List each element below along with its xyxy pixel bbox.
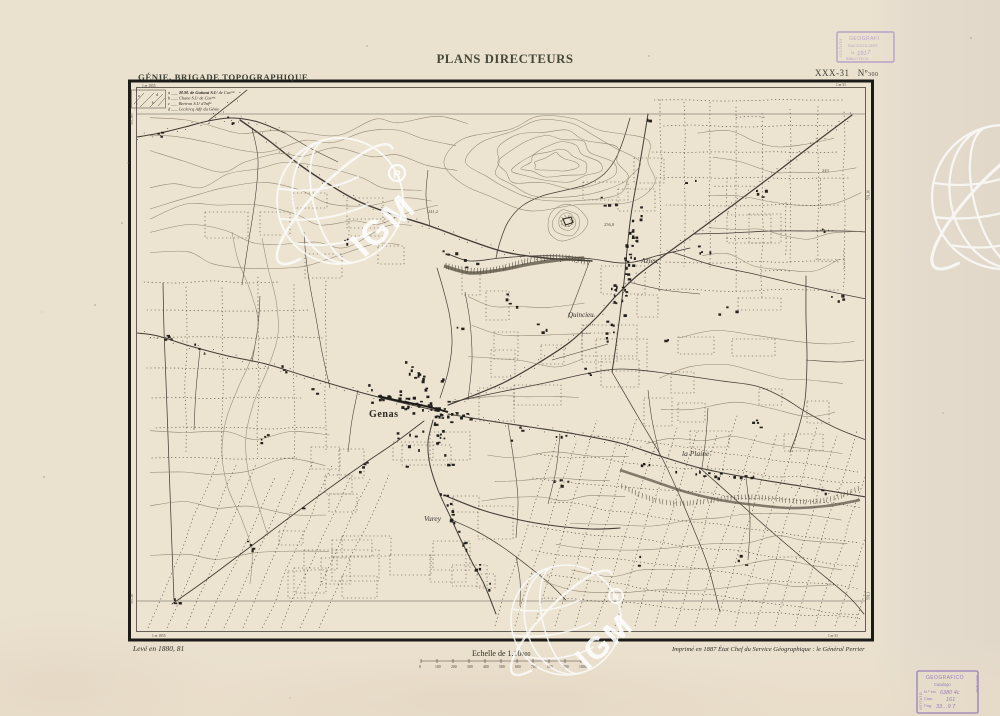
svg-text:243: 243 xyxy=(822,168,830,173)
svg-text:Levé en 1880, 81: Levé en 1880, 81 xyxy=(132,644,184,653)
svg-text:400: 400 xyxy=(483,665,489,669)
svg-text:0: 0 xyxy=(419,665,421,669)
svg-text:PLANS DIRECTEURS: PLANS DIRECTEURS xyxy=(436,52,573,66)
svg-text:d: d xyxy=(156,92,158,97)
svg-text:GEOGRAFICO: GEOGRAFICO xyxy=(926,675,964,681)
svg-text:Quincieu: Quincieu xyxy=(568,311,594,319)
svg-text:c ___ Bertron S.Lt d'Infie: c ___ Bertron S.Lt d'Infie xyxy=(168,101,212,106)
svg-text:591.1: 591.1 xyxy=(867,592,871,600)
svg-text:a ___ M.M. de Guitaut S.Lt de: a ___ M.M. de Guitaut S.Lt de Cavrie xyxy=(168,90,235,95)
svg-text:la Plaine: la Plaine xyxy=(682,449,710,458)
svg-text:ISTITUTO: ISTITUTO xyxy=(839,38,843,57)
svg-text:Genas: Genas xyxy=(369,409,399,420)
svg-text:300: 300 xyxy=(467,665,473,669)
svg-text:100: 100 xyxy=(435,665,441,669)
svg-text:b ___ Chane S.Lt de Cavrie: b ___ Chane S.Lt de Cavrie xyxy=(168,96,216,101)
svg-text:a: a xyxy=(138,93,140,98)
svg-text:33…9 7: 33…9 7 xyxy=(936,704,956,710)
svg-text:Imprimé en 1887 État Chef du: Imprimé en 1887 État Chef du Service Géo… xyxy=(671,645,865,653)
svg-text:597.365: 597.365 xyxy=(130,113,134,125)
svg-text:Azieu: Azieu xyxy=(640,256,658,265)
svg-text:Catalogo: Catalogo xyxy=(934,682,951,687)
svg-text:RACCOLTA CART.: RACCOLTA CART. xyxy=(848,44,878,48)
svg-text:161: 161 xyxy=(946,697,955,703)
svg-text:600: 600 xyxy=(515,665,521,669)
svg-text:R: R xyxy=(393,169,401,181)
svg-text:N.º Inv.: N.º Inv. xyxy=(924,689,937,694)
svg-text:1.er 1855: 1.er 1855 xyxy=(152,634,166,638)
svg-text:GÉNIE, BRIGADE TOPOGRAPHIQUE: GÉNIE, BRIGADE TOPOGRAPHIQUE xyxy=(138,72,308,82)
svg-text:BIBLIOTECA: BIBLIOTECA xyxy=(846,57,869,61)
svg-text:591.16: 591.16 xyxy=(867,190,871,200)
svg-text:ISTITUTO: ISTITUTO xyxy=(919,692,923,710)
svg-text:1.er 31: 1.er 31 xyxy=(836,83,846,87)
svg-text:d ___ Leclercq Adjt du Génie: d ___ Leclercq Adjt du Génie xyxy=(168,107,219,112)
svg-text:R: R xyxy=(613,592,620,602)
svg-text:Clas.: Clas. xyxy=(924,696,933,701)
svg-text:200: 200 xyxy=(451,665,457,669)
svg-text:1.er 31: 1.er 31 xyxy=(828,634,838,638)
svg-text:GEOGRAFI: GEOGRAFI xyxy=(849,36,879,42)
svg-text:Vurey: Vurey xyxy=(424,514,442,523)
svg-text:MILITARE: MILITARE xyxy=(975,675,979,693)
svg-text:N.: N. xyxy=(851,50,855,55)
svg-text:597.36: 597.36 xyxy=(130,594,134,604)
svg-text:Pag.: Pag. xyxy=(924,703,932,708)
svg-text:b: b xyxy=(152,100,154,105)
svg-text:500: 500 xyxy=(499,665,505,669)
svg-text:6380 4c: 6380 4c xyxy=(940,690,960,696)
